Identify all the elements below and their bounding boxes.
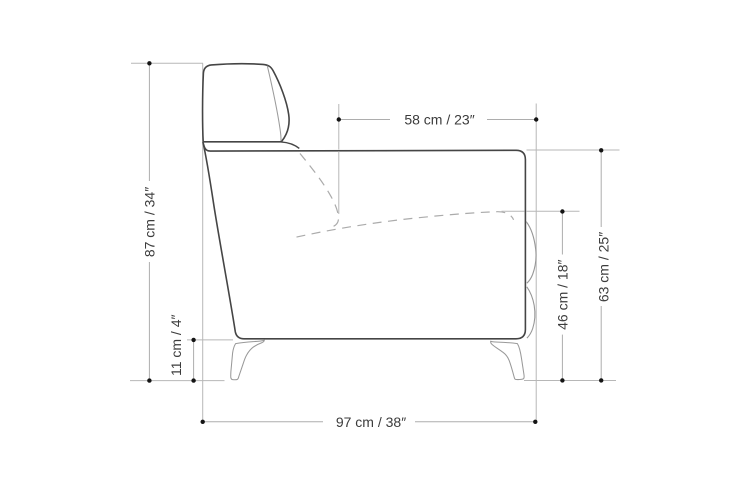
svg-text:58 cm / 23″: 58 cm / 23″ — [404, 111, 474, 127]
svg-text:97 cm / 38″: 97 cm / 38″ — [336, 414, 406, 430]
svg-text:11 cm / 4″: 11 cm / 4″ — [168, 315, 184, 377]
svg-text:87 cm / 34″: 87 cm / 34″ — [141, 187, 157, 257]
svg-text:46 cm / 18″: 46 cm / 18″ — [555, 259, 571, 329]
svg-text:63 cm / 25″: 63 cm / 25″ — [595, 232, 611, 302]
